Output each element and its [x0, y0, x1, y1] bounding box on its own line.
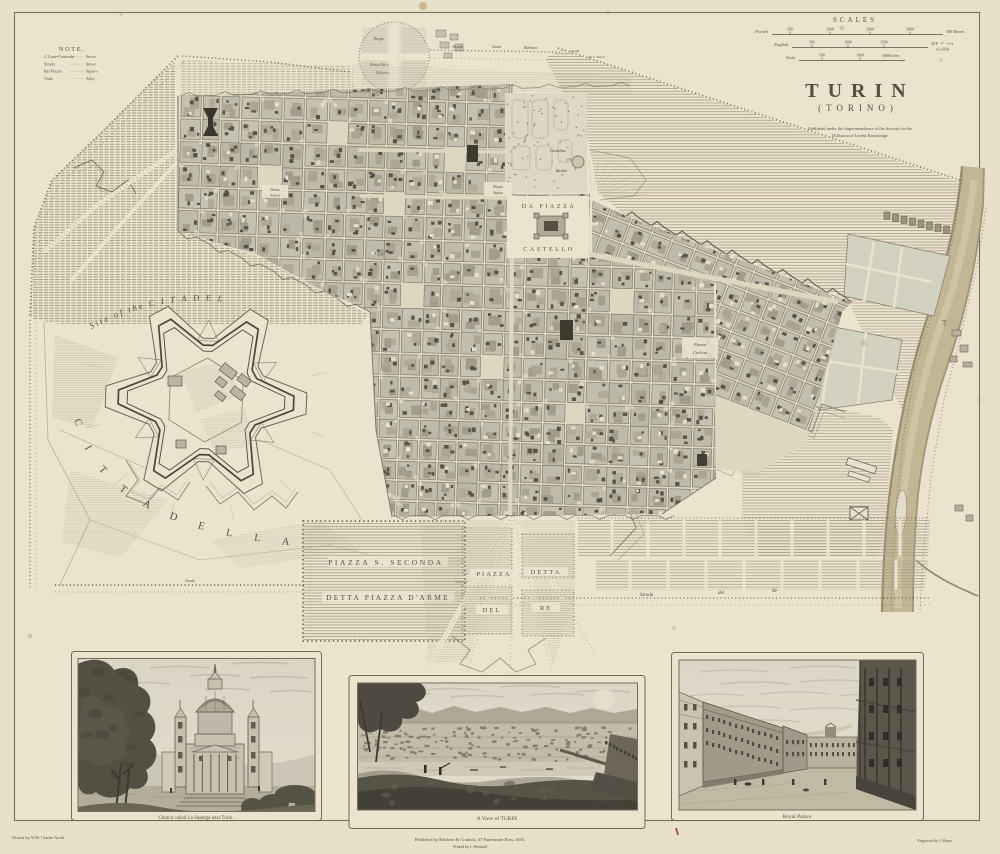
- svg-text:Piazza: Piazza: [492, 185, 503, 189]
- svg-text:500: 500: [787, 28, 793, 32]
- svg-text:Santa: Santa: [492, 44, 501, 49]
- svg-text:A View of TURIN: A View of TURIN: [477, 815, 518, 822]
- svg-text:Carlina: Carlina: [693, 350, 708, 355]
- svg-text:DA PIAZZA: DA PIAZZA: [522, 204, 577, 210]
- svg-text:10000 feet: 10000 feet: [882, 53, 900, 58]
- svg-text:Tesia: Tesia: [786, 55, 796, 60]
- svg-text:Royal Palace: Royal Palace: [783, 814, 812, 820]
- svg-text:TURIN: TURIN: [805, 80, 914, 102]
- svg-text:French: French: [754, 29, 769, 34]
- svg-text:PIAZZA: PIAZZA: [476, 571, 511, 578]
- svg-text:of a Mile: of a Mile: [936, 48, 950, 52]
- svg-text:1000: 1000: [826, 28, 834, 32]
- svg-text:500 Metres: 500 Metres: [946, 29, 965, 34]
- svg-text:del S. Parco: del S. Parco: [588, 55, 605, 59]
- svg-text:Giardino: Giardino: [550, 148, 567, 153]
- svg-text:Square: Square: [86, 69, 98, 74]
- svg-text:Viale: Viale: [44, 76, 53, 81]
- svg-text:Street: Street: [86, 54, 96, 59]
- svg-text:Strada: Strada: [452, 44, 463, 49]
- svg-text:Engraved by J. Shury.: Engraved by J. Shury.: [917, 838, 952, 843]
- svg-text:Strada: Strada: [640, 593, 654, 598]
- svg-text:Printed by J. Henshall: Printed by J. Henshall: [453, 845, 487, 849]
- svg-text:Diffusion of Useful Knowledge: Diffusion of Useful Knowledge: [832, 133, 888, 138]
- svg-text:Church called La Superga near: Church called La Superga near Turin.: [158, 816, 233, 821]
- svg-text:Dones: Dones: [269, 188, 280, 192]
- svg-text:Susina: Susina: [493, 191, 503, 195]
- svg-text:Street: Street: [86, 61, 96, 66]
- svg-text:Reale: Reale: [555, 168, 566, 173]
- svg-text:RE: RE: [540, 605, 552, 612]
- svg-text:Rei Piazza: Rei Piazza: [44, 69, 62, 74]
- svg-text:1000: 1000: [844, 41, 852, 45]
- svg-text:Published under the Superinten: Published under the Superintendence of t…: [808, 126, 911, 131]
- svg-text:2000: 2000: [866, 28, 874, 32]
- svg-text:English: English: [773, 42, 789, 47]
- svg-text:SCALES: SCALES: [833, 16, 877, 24]
- svg-text:del: del: [718, 591, 725, 596]
- svg-text:Drawn by W.B. Clarke Archt.: Drawn by W.B. Clarke Archt.: [12, 835, 65, 840]
- svg-text:CASTELLO: CASTELLO: [523, 247, 574, 253]
- svg-text:Re: Re: [771, 589, 778, 594]
- svg-text:Susina: Susina: [270, 194, 280, 198]
- svg-text:500: 500: [819, 54, 825, 58]
- svg-text:Strada: Strada: [44, 61, 55, 66]
- svg-text:500: 500: [809, 41, 815, 45]
- svg-text:DEL: DEL: [483, 607, 502, 614]
- svg-text:1000: 1000: [856, 54, 864, 58]
- svg-text:40 F: 40 F: [931, 41, 939, 46]
- svg-text:NOTE.: NOTE.: [59, 46, 85, 53]
- svg-text:C.Cont=Contrada: C.Cont=Contrada: [44, 54, 74, 59]
- svg-text:Strada: Strada: [570, 49, 580, 53]
- svg-text:3000: 3000: [906, 28, 914, 32]
- svg-text:= ¼: = ¼: [947, 41, 953, 46]
- svg-text:Alley: Alley: [85, 76, 95, 81]
- svg-text:Strada: Strada: [185, 579, 195, 583]
- svg-text:(TORINO): (TORINO): [818, 103, 898, 113]
- svg-text:DETTA: DETTA: [531, 569, 562, 576]
- svg-text:Borgo: Borgo: [374, 36, 384, 41]
- svg-text:Barbara: Barbara: [524, 45, 538, 50]
- svg-text:1500: 1500: [880, 41, 888, 45]
- svg-text:Piazza: Piazza: [693, 342, 707, 347]
